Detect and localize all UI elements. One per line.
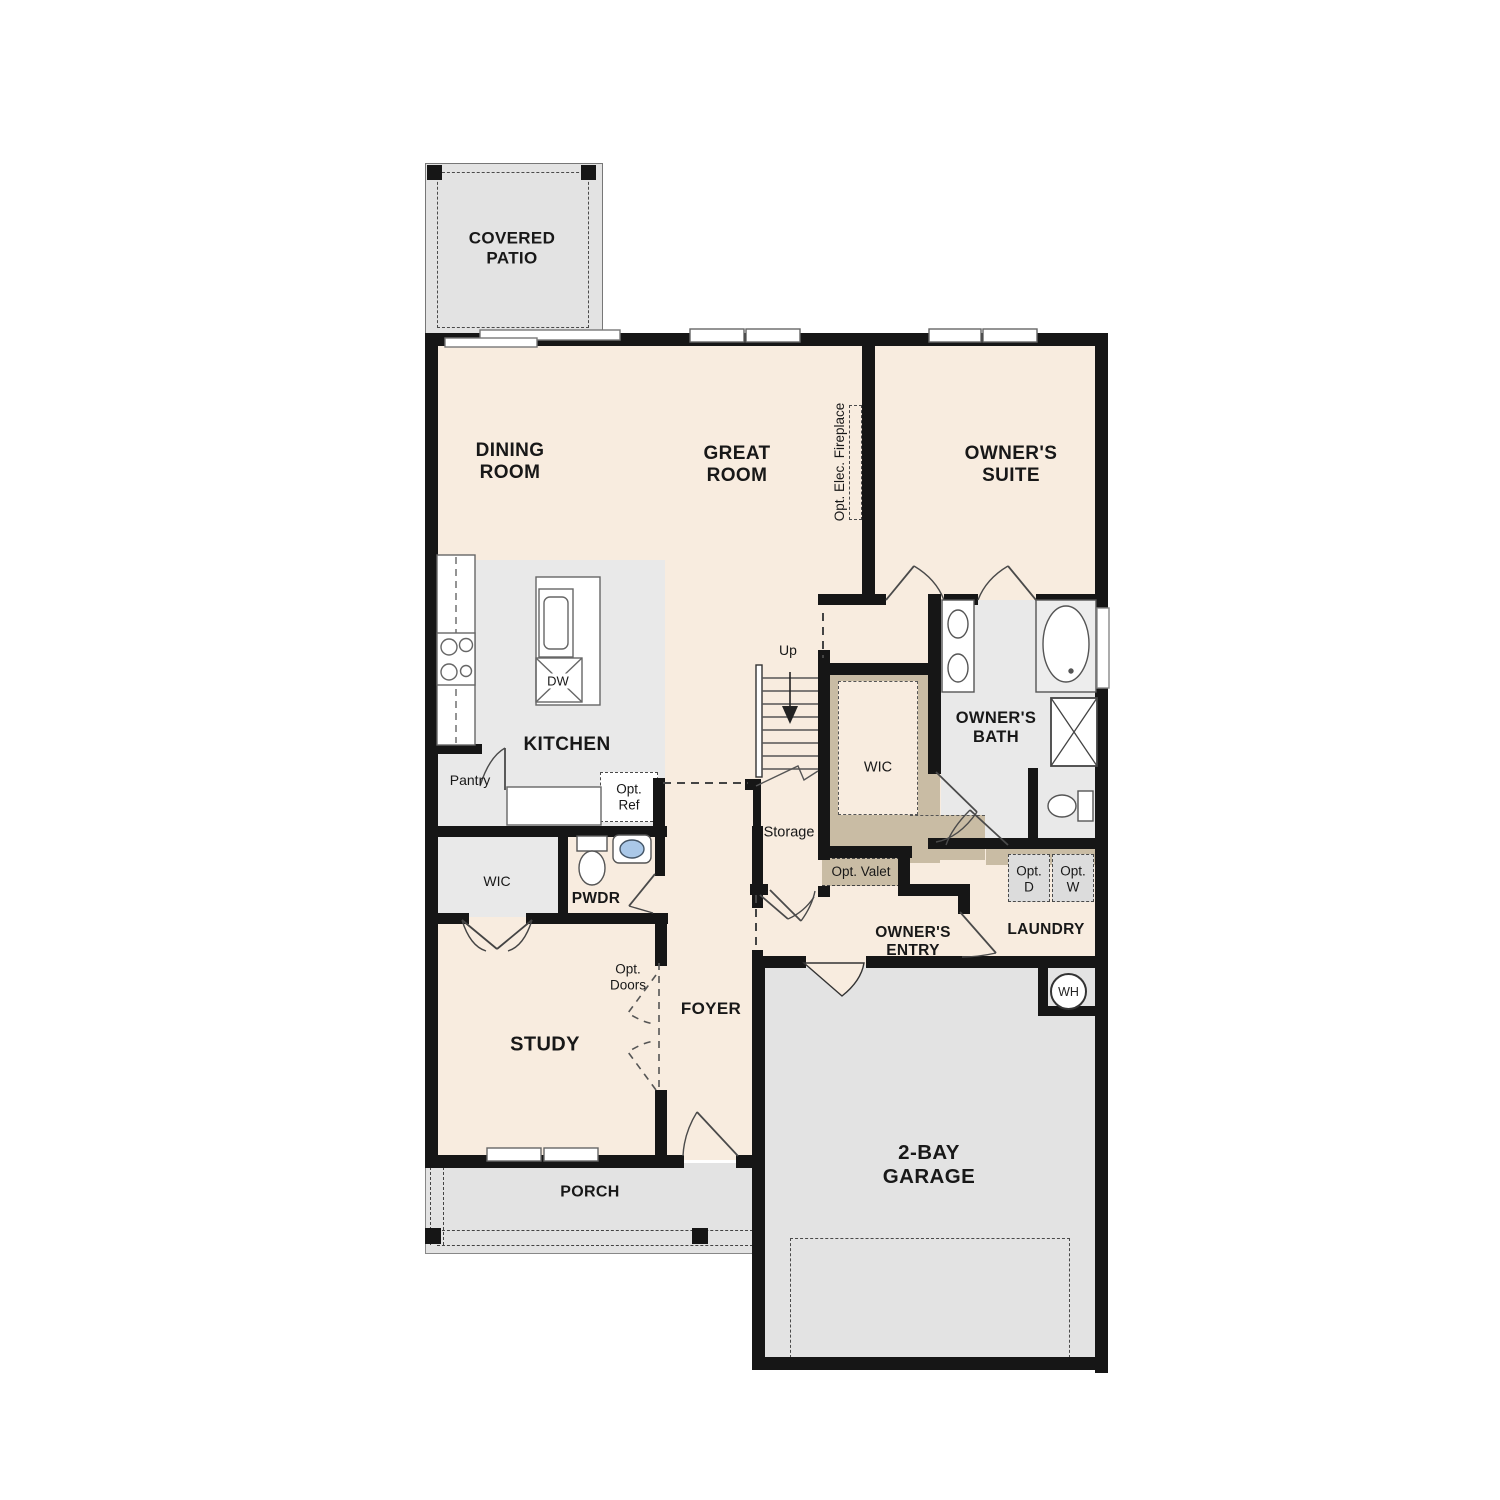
powder-label: PWDR	[572, 890, 621, 908]
study-label: STUDY	[510, 1033, 580, 1056]
great-room-label: GREAT ROOM	[704, 443, 771, 487]
staircase	[756, 665, 818, 786]
garage-entry-door	[804, 963, 864, 996]
water-heater-label: WH	[1058, 985, 1079, 999]
owners-suite-label: OWNER'S SUITE	[965, 443, 1058, 487]
opt-fireplace-label: Opt. Elec. Fireplace	[832, 403, 848, 522]
covered-patio-label: COVERED PATIO	[469, 228, 555, 267]
cased-opening	[663, 613, 823, 950]
floor-plan: WH COVERED PATIO DINING ROOM GREAT ROOM …	[0, 0, 1500, 1500]
owners-bath-doors	[936, 772, 1008, 845]
owners-bath-label: OWNER'S BATH	[956, 709, 1036, 747]
stairs-up-label: Up	[779, 642, 797, 658]
laundry-label: LAUNDRY	[1007, 921, 1084, 939]
opt-washer-label: Opt. W	[1060, 863, 1086, 894]
opt-dryer-label: Opt. D	[1016, 863, 1042, 894]
owners-suite-doors	[886, 566, 1036, 600]
porch-label: PORCH	[560, 1184, 619, 1203]
dishwasher-label: DW	[545, 673, 571, 688]
powder-door	[629, 874, 655, 913]
wic-center-label: WIC	[864, 760, 892, 777]
bath-window	[1097, 608, 1109, 688]
opt-valet-label: Opt. Valet	[831, 864, 890, 880]
wic-left-double-doors	[462, 920, 532, 951]
bath-tub	[1036, 600, 1109, 692]
stair-direction-arrow	[782, 706, 798, 724]
water-heater-icon: WH	[1050, 973, 1087, 1010]
window	[690, 329, 1037, 342]
fixtures-layer	[0, 0, 1500, 1500]
bath-vanity	[942, 600, 974, 692]
owners-entry-label: OWNER'S ENTRY	[875, 924, 951, 960]
sliding-door	[445, 330, 620, 347]
window	[487, 1148, 598, 1161]
bath-toilet	[1048, 791, 1093, 821]
powder-sink	[613, 835, 651, 863]
garage-label: 2-BAY GARAGE	[883, 1141, 975, 1189]
kitchen-label: KITCHEN	[523, 734, 610, 756]
bath-shower	[1051, 698, 1097, 766]
pantry-label: Pantry	[450, 772, 490, 788]
dining-room-label: DINING ROOM	[476, 440, 545, 484]
foyer-label: FOYER	[681, 999, 741, 1019]
front-door	[683, 1112, 738, 1156]
opt-doors-label: Opt. Doors	[610, 961, 646, 992]
wic-left-label: WIC	[483, 873, 510, 889]
storage-label: Storage	[764, 825, 815, 842]
powder-toilet	[577, 836, 607, 885]
opt-ref-label: Opt. Ref	[616, 781, 642, 812]
